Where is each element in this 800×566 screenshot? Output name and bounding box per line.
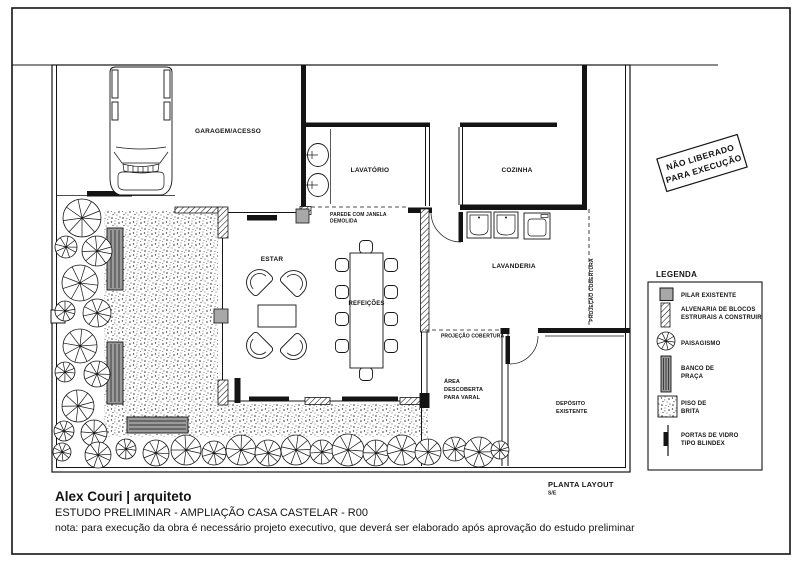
porta-blindex-leaf xyxy=(235,378,241,403)
armchair xyxy=(279,332,312,365)
legend-title: LEGENDA xyxy=(656,270,697,279)
banco-de-praca-swatch xyxy=(661,356,671,392)
tank xyxy=(494,212,518,238)
label-garagem: GARAGEM/ACESSO xyxy=(195,128,261,135)
dining-chair xyxy=(360,241,373,254)
label-lavatorio: LAVATÓRIO xyxy=(351,165,390,174)
tree-symbol xyxy=(491,441,509,459)
not-released-stamp: NÃO LIBERADO PARA EXECUÇÃO xyxy=(657,134,747,191)
washing-machine xyxy=(524,213,550,239)
tree-symbol xyxy=(255,440,281,466)
dining-chair xyxy=(385,313,398,326)
svg-text:BRITA: BRITA xyxy=(681,409,700,415)
drawing-scale: S/E xyxy=(548,491,557,497)
tree-symbol xyxy=(62,265,98,301)
svg-text:BANCO DE: BANCO DE xyxy=(681,366,714,372)
tree-symbol xyxy=(85,442,111,468)
dining-chair xyxy=(385,340,398,353)
svg-text:EXISTENTE: EXISTENTE xyxy=(556,409,588,415)
tree-symbol xyxy=(363,440,389,466)
tree-symbol xyxy=(63,329,97,363)
pilar-existente xyxy=(296,209,309,223)
svg-text:PRAÇA: PRAÇA xyxy=(681,374,704,380)
tree-symbol xyxy=(657,332,675,350)
tree-symbol xyxy=(332,434,364,466)
tree-symbol xyxy=(464,437,494,467)
tree-symbol xyxy=(62,390,94,422)
floor-plan-sheet: PAREDE COM JANELA DEMOLIDA xyxy=(0,0,800,566)
svg-text:TIPO BLINDEX: TIPO BLINDEX xyxy=(681,441,725,447)
porta-blindex-symbol xyxy=(664,425,669,456)
piso-de-brita-swatch xyxy=(658,396,677,417)
svg-text:ALVENARIA DE BLOCOS: ALVENARIA DE BLOCOS xyxy=(681,307,756,313)
svg-text:PISO DE: PISO DE xyxy=(681,401,706,407)
tree-symbol xyxy=(55,301,75,321)
tree-symbol xyxy=(63,199,101,237)
svg-text:PILAR EXISTENTE: PILAR EXISTENTE xyxy=(681,293,736,299)
tree-symbol xyxy=(226,435,256,465)
tree-symbol xyxy=(171,435,201,465)
dining-chair xyxy=(336,286,349,299)
drawing-title: PLANTA LAYOUT xyxy=(548,480,614,489)
door-corridor xyxy=(431,212,463,242)
alvenaria-hatch-swatch xyxy=(661,303,670,327)
svg-text:ESTRURAIS A CONSTRUIR: ESTRURAIS A CONSTRUIR xyxy=(681,315,762,321)
tree-symbol xyxy=(387,435,417,465)
dining-chair xyxy=(336,259,349,272)
dining-chair xyxy=(385,259,398,272)
note-parede-demolida: PAREDE COM JANELA xyxy=(330,212,387,218)
laundry-fixtures xyxy=(467,212,550,239)
tree-symbol xyxy=(54,421,74,441)
porta-blindex-panel xyxy=(249,397,289,401)
tree-symbol xyxy=(415,439,441,465)
estar-furniture xyxy=(241,264,312,365)
addition-walls xyxy=(214,207,429,405)
label-estar: ESTAR xyxy=(261,256,284,263)
door-deposito-leaf xyxy=(506,336,511,364)
car-top-view xyxy=(110,67,172,195)
pilar-existente-swatch xyxy=(660,288,673,301)
svg-text:DESCOBERTA: DESCOBERTA xyxy=(444,387,483,393)
svg-text:PROJEÇÃO COBERTURA: PROJEÇÃO COBERTURA xyxy=(441,333,504,340)
tree-symbol xyxy=(55,362,75,382)
porta-blindex-panel xyxy=(342,397,398,401)
lavatorio-sinks xyxy=(306,144,329,197)
dining-chair xyxy=(385,286,398,299)
armchair xyxy=(241,331,274,364)
armchair xyxy=(241,264,274,297)
tree-symbol xyxy=(82,236,112,266)
svg-text:PORTAS DE VIDRO: PORTAS DE VIDRO xyxy=(681,433,739,439)
project-note: nota: para execução da obra é necessário… xyxy=(55,522,635,534)
pilar-existente xyxy=(214,309,228,323)
label-refeicoes: REFEIÇÕES xyxy=(348,300,384,307)
label-lavanderia: LAVANDERIA xyxy=(492,263,536,270)
label-cozinha: COZINHA xyxy=(501,167,532,174)
label-varal: ÁREA xyxy=(444,378,460,385)
coffee-table xyxy=(258,305,296,327)
tree-symbol xyxy=(310,440,334,464)
dining-chair xyxy=(336,313,349,326)
legend: LEGENDA PILAR EXISTENTE ALVENARIA DE BLO… xyxy=(648,270,762,470)
armchair xyxy=(279,265,312,298)
tree-symbol xyxy=(143,440,169,466)
tree-symbol xyxy=(443,437,467,461)
title-block: PLANTA LAYOUT S/E Alex Couri | arquiteto… xyxy=(55,480,635,534)
demolished-wall: PAREDE COM JANELA DEMOLIDA xyxy=(311,207,408,225)
tree-symbol xyxy=(55,236,77,258)
tree-symbol xyxy=(84,361,110,387)
project-title: ESTUDO PRELIMINAR - AMPLIAÇÃO CASA CASTE… xyxy=(55,506,368,519)
dining-table xyxy=(350,253,383,368)
existing-walls xyxy=(300,65,587,215)
label-deposito: DEPÓSITO xyxy=(556,399,586,407)
dining-chair xyxy=(360,368,373,381)
dining-chair xyxy=(336,340,349,353)
dining-set xyxy=(336,241,398,381)
tree-symbol xyxy=(81,420,107,446)
tree-symbol xyxy=(202,441,226,465)
tree-symbol xyxy=(53,443,71,461)
svg-text:PROJEÇÃO COBERTURA: PROJEÇÃO COBERTURA xyxy=(588,258,595,321)
tank xyxy=(467,212,491,238)
tree-symbol xyxy=(281,435,311,465)
tree-symbol xyxy=(116,439,136,459)
paisagismo-tree-symbol xyxy=(657,332,675,350)
svg-text:PAISAGISMO: PAISAGISMO xyxy=(681,341,721,347)
author-name: Alex Couri | arquiteto xyxy=(55,489,192,504)
tree-symbol xyxy=(83,299,111,327)
svg-text:DEMOLIDA: DEMOLIDA xyxy=(330,219,358,225)
svg-text:PARA VARAL: PARA VARAL xyxy=(444,395,481,401)
